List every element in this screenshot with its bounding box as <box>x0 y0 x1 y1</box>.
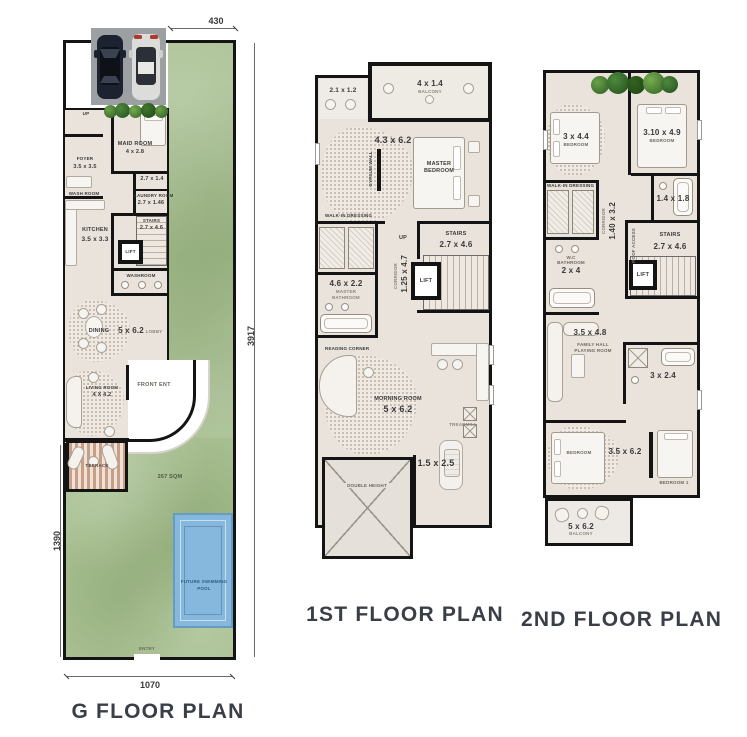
window <box>697 120 702 140</box>
f1-small-balcony-size: 2.1 x 1.2 <box>321 87 365 94</box>
f2-corridor-label: CORRIDOR <box>601 208 606 234</box>
window <box>489 345 494 365</box>
wall <box>315 272 375 275</box>
f2-bath2-tub <box>661 348 695 366</box>
dining-label: DINING <box>84 328 114 334</box>
g-floor-plan: UP MAID ROOM 4 x 2.8 FOYER 3.5 x 3.5 WAS… <box>58 8 268 730</box>
maid-room-label: MAID ROOM <box>113 141 157 147</box>
floor-plans-page: { "titles": { "g": "G FLOOR PLAN", "f1":… <box>0 0 747 737</box>
treadmill-label: TREADMILL <box>443 422 483 427</box>
wall <box>625 296 697 299</box>
family-label: FAMILY HALL <box>571 342 615 347</box>
f2-bed1-label: BEDROOM <box>553 142 599 147</box>
f2-bed2-label: BEDROOM <box>637 138 687 143</box>
wall <box>315 335 378 338</box>
f2-corridor-size: 1.40 x 3.2 <box>608 202 617 240</box>
dim-line-bottom <box>66 676 233 677</box>
f1-up-label: UP <box>393 235 413 241</box>
first-floor-plan: 4 x 1.4 BALCONY 2.1 x 1.2 4.3 x 6.2 MAST… <box>305 55 505 645</box>
f2-wc-tub <box>549 288 595 308</box>
f2-bed3-size: 3.5 x 6.2 <box>603 447 647 456</box>
wall <box>63 438 129 442</box>
mbath-label2: BATHROOM <box>321 295 371 300</box>
wall <box>111 293 168 296</box>
washroom-label: WASHROOM <box>118 273 164 278</box>
f1-balcony-br-size: 1.5 x 2.5 <box>413 458 459 468</box>
f2-wc-sub: BATHROOM <box>549 260 593 265</box>
f2-balcony-size: 5 x 6.2 <box>559 522 603 531</box>
entry-gap <box>134 654 160 663</box>
living-chair <box>88 372 99 383</box>
mbath-sink <box>325 303 333 311</box>
f2-balcony-label: BALCONY <box>559 531 603 536</box>
washroom-sink <box>121 281 129 289</box>
wall <box>136 189 168 191</box>
wall <box>546 312 599 315</box>
f2-stairs-size: 2.7 x 4.6 <box>647 242 693 251</box>
f2-lift: LIFT <box>629 260 657 290</box>
dining-table <box>85 316 103 338</box>
wall <box>111 171 168 174</box>
swimming-pool: FUTURE SWIMMING POOL <box>173 513 233 628</box>
reading-corner-label: READING CORNER <box>325 346 377 351</box>
dining-chair <box>96 304 107 315</box>
living-chair <box>104 426 115 437</box>
wall <box>126 365 129 400</box>
f2-wardrobe <box>547 190 569 234</box>
mbath-label1: MASTER <box>321 289 371 294</box>
f2-wardrobe <box>572 190 594 234</box>
terrace-label: TERRACE <box>76 463 118 468</box>
mbath-tub <box>320 314 372 333</box>
nightstand <box>468 141 480 153</box>
wall <box>111 213 168 216</box>
balcony-table <box>425 95 434 104</box>
window <box>489 385 494 405</box>
stairs-size: 2.7 x 4.6 <box>136 225 167 231</box>
wall <box>596 180 599 238</box>
laundry-label: LAUNDRY ROOM <box>134 193 168 198</box>
dining-size: 5 x 6.2 <box>116 326 146 335</box>
wash-room-label: WASH ROOM <box>66 191 102 196</box>
wall <box>417 310 492 313</box>
balcony-chair <box>345 99 356 110</box>
lift: LIFT <box>118 240 143 264</box>
maid-room-size: 4 x 2.8 <box>113 149 157 155</box>
dim-1070: 1070 <box>128 680 172 690</box>
bath-size: 2.7 x 1.4 <box>136 176 168 182</box>
f1-stairs-size: 2.7 x 4.6 <box>433 240 479 249</box>
wall <box>63 196 103 199</box>
foyer-label: FOYER <box>68 156 102 161</box>
wardrobe <box>348 227 374 269</box>
wall <box>623 342 626 404</box>
washroom-sink <box>138 281 146 289</box>
wall <box>111 268 168 271</box>
f2-bath1-sink <box>659 182 667 190</box>
master-label2: BEDROOM <box>419 168 459 174</box>
wall <box>546 420 626 423</box>
wall <box>625 220 697 223</box>
wall <box>546 237 599 240</box>
kitchen-label: KITCHEN <box>78 227 112 233</box>
foyer-bench <box>66 176 92 188</box>
car-dark <box>94 33 126 101</box>
wall <box>63 134 103 137</box>
wardrobe <box>319 227 345 269</box>
balcony-chair <box>325 99 336 110</box>
entry-label: ENTRY <box>134 646 160 651</box>
dim-1390: 1390 <box>52 531 62 551</box>
wall <box>417 221 492 224</box>
dim-3917: 3917 <box>246 326 256 346</box>
f1-corridor-size: 1.25 x 4.7 <box>400 255 409 293</box>
living-label: LIVING ROOM <box>80 385 124 390</box>
front-ent-label: FRONT ENT <box>134 382 174 388</box>
f1-stairs-label: STAIRS <box>433 231 479 237</box>
f2-roof-access-label: ROOF ACCESS <box>631 228 636 263</box>
mbath-sink <box>341 303 349 311</box>
balcony-chair <box>383 83 394 94</box>
double-height-void <box>322 457 413 559</box>
pantry-unit <box>463 407 477 421</box>
f2-stairs-label: STAIRS <box>647 232 693 238</box>
dining-chair <box>78 308 89 319</box>
f2-bath1-size: 1.4 x 1.8 <box>651 194 695 203</box>
lobby-label: LOBBY <box>143 329 165 334</box>
balcony-table <box>577 508 588 519</box>
wall <box>417 221 420 259</box>
master-size: 4.3 x 6.2 <box>363 135 423 145</box>
f1-dressing-label: WALK-IN DRESSING <box>325 213 377 218</box>
nightstand <box>468 195 480 207</box>
window <box>543 130 548 150</box>
dim-line-top <box>170 28 236 29</box>
pool-label2: POOL <box>177 586 231 591</box>
f2-bed3 <box>551 432 605 484</box>
wall <box>375 221 378 338</box>
up-label: UP <box>76 111 96 116</box>
f2-bed4-label: BEDROOM 1 <box>651 480 697 485</box>
f2-wc-size: 2 x 4 <box>549 266 593 275</box>
dim-line-right <box>254 43 255 657</box>
dim-430: 430 <box>196 16 236 26</box>
window <box>697 390 702 410</box>
family-sub: PLAYING ROOM <box>571 348 615 353</box>
f2-wc-sink <box>571 245 579 253</box>
f2-planter <box>591 72 677 98</box>
washroom-sink <box>154 281 162 289</box>
wall <box>625 220 628 298</box>
gypsum-wall-label: GYPSUM WALL <box>368 151 373 187</box>
wall <box>111 213 114 295</box>
f2-bed3-label: BEDROOM <box>559 450 599 455</box>
f1-top-balcony-size: 4 x 1.4 <box>405 79 455 88</box>
f1-corridor-label: CORRIDOR <box>393 263 398 289</box>
living-size: 4 X 4.2 <box>80 392 124 398</box>
g-plan-title: G FLOOR PLAN <box>58 700 258 724</box>
master-label1: MASTER <box>419 161 459 167</box>
second-floor-plan: 3 x 4.4 BEDROOM 3.10 x 4.9 BEDROOM 1.4 x… <box>533 60 715 645</box>
wall <box>631 173 697 176</box>
f2-bed2-size: 3.10 x 4.9 <box>637 128 687 137</box>
f2-wc-sink <box>555 245 563 253</box>
morning-label: MORNING ROOM <box>371 396 425 402</box>
wall <box>649 432 653 478</box>
dining-chair <box>96 342 107 353</box>
f1-top-balcony-label: BALCONY <box>405 89 455 94</box>
mbath-size: 4.6 x 2.2 <box>321 279 371 288</box>
stairs-label: STAIRS <box>136 218 167 223</box>
f2-bath2-size: 3 x 2.4 <box>641 371 685 380</box>
dining-chair <box>78 338 89 349</box>
f2-dressing-label: WALK-IN DRESSING <box>547 183 599 188</box>
kitchen-counter-left <box>65 204 77 266</box>
shower <box>628 348 648 368</box>
laundry-size: 2.7 x 1.46 <box>134 200 168 206</box>
balcony-chair <box>463 83 474 94</box>
living-sofa <box>66 376 82 428</box>
f2-bath2-sink <box>631 376 639 384</box>
kitchen-counter-top <box>65 200 105 210</box>
f2-bed4 <box>657 430 693 478</box>
lawn-area-label: 267 SQM <box>148 474 192 480</box>
car-white <box>129 32 163 102</box>
wall <box>623 342 697 345</box>
window <box>315 143 320 165</box>
pool-label: FUTURE SWIMMING <box>177 579 231 584</box>
kitchenette-counter <box>476 343 489 401</box>
f1-small-balcony <box>319 79 367 119</box>
f2-bed1-size: 3 x 4.4 <box>553 132 599 141</box>
f1-lift: LIFT <box>411 262 441 300</box>
morning-chair <box>363 367 374 378</box>
morning-size: 5 x 6.2 <box>371 404 425 414</box>
family-table <box>571 354 585 378</box>
gypsum-wall <box>377 149 381 191</box>
foyer-size: 3.5 x 3.5 <box>68 164 102 170</box>
family-size: 3.5 x 4.8 <box>567 328 613 337</box>
family-sofa-l <box>547 322 563 402</box>
f2-title: 2ND FLOOR PLAN <box>521 608 721 632</box>
kitchen-size: 3.5 x 3.3 <box>77 236 113 243</box>
stool <box>452 359 463 370</box>
planter-hedge <box>104 103 170 119</box>
double-height-label: DOUBLE HEIGHT <box>337 483 397 488</box>
stool <box>437 359 448 370</box>
f1-title: 1ST FLOOR PLAN <box>305 603 505 627</box>
